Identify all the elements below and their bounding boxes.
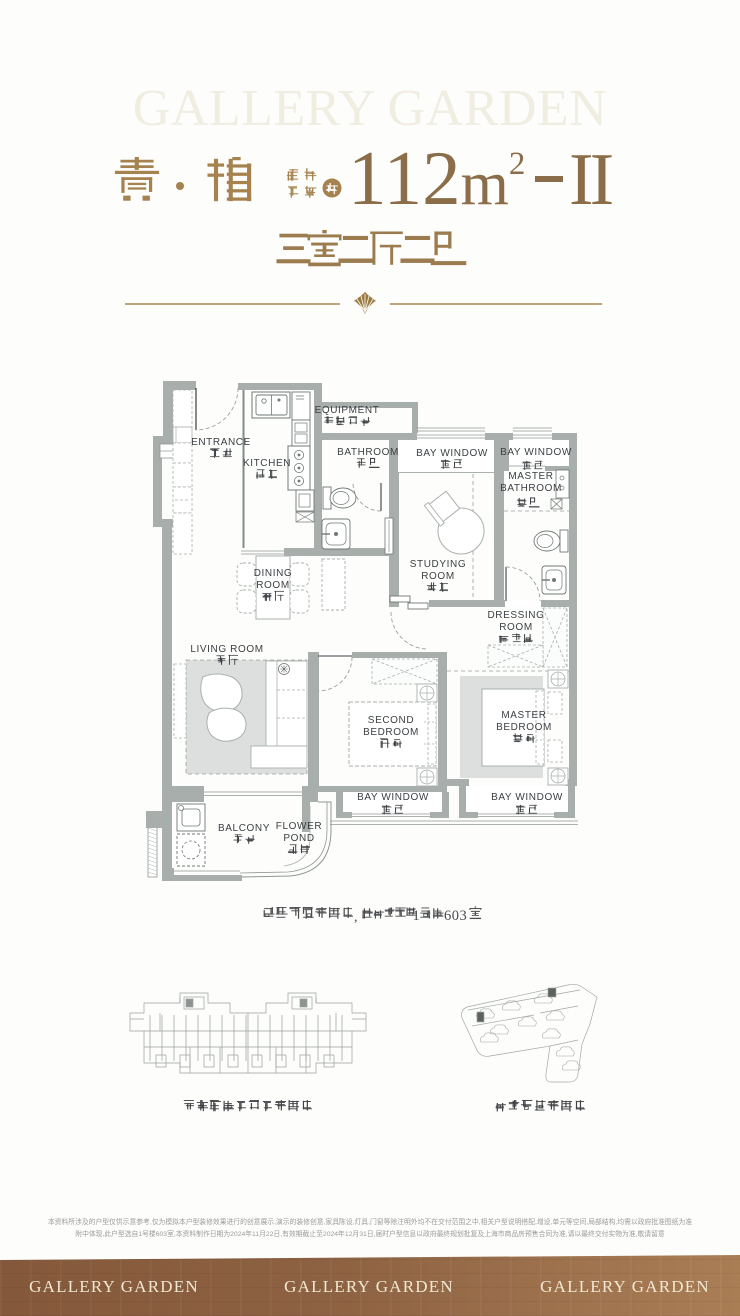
svg-text:,: , (354, 910, 358, 925)
svg-text:EQUIPMENT: EQUIPMENT (315, 405, 380, 416)
svg-text:BALCONY: BALCONY (218, 823, 270, 834)
svg-text:ENTRANCE: ENTRANCE (191, 437, 251, 448)
svg-text:603: 603 (444, 908, 467, 924)
svg-text:SECOND: SECOND (368, 715, 414, 726)
svg-text:BATHROOM: BATHROOM (337, 447, 399, 458)
svg-text:ROOM: ROOM (421, 571, 455, 582)
svg-text:DINING: DINING (254, 568, 293, 579)
svg-text:LIVING ROOM: LIVING ROOM (190, 644, 263, 655)
svg-text:DRESSING: DRESSING (487, 610, 544, 621)
svg-text:MASTER: MASTER (508, 471, 553, 482)
svg-text:1: 1 (413, 908, 420, 924)
svg-text:BAY WINDOW: BAY WINDOW (416, 448, 488, 459)
svg-text:BEDROOM: BEDROOM (496, 722, 552, 733)
svg-text:ROOM: ROOM (499, 622, 533, 633)
svg-text:BAY WINDOW: BAY WINDOW (491, 792, 563, 803)
svg-text:ROOM: ROOM (256, 580, 290, 591)
svg-text:BAY WINDOW: BAY WINDOW (357, 792, 429, 803)
svg-text:STUDYING: STUDYING (410, 559, 466, 570)
svg-text:POND: POND (283, 833, 314, 844)
svg-text:BEDROOM: BEDROOM (363, 727, 419, 738)
svg-text:MASTER: MASTER (501, 710, 546, 721)
svg-text:BAY WINDOW: BAY WINDOW (500, 447, 572, 458)
svg-text:FLOWER: FLOWER (276, 821, 322, 832)
svg-text:KITCHEN: KITCHEN (243, 458, 291, 469)
svg-text:BATHROOM: BATHROOM (500, 483, 562, 494)
